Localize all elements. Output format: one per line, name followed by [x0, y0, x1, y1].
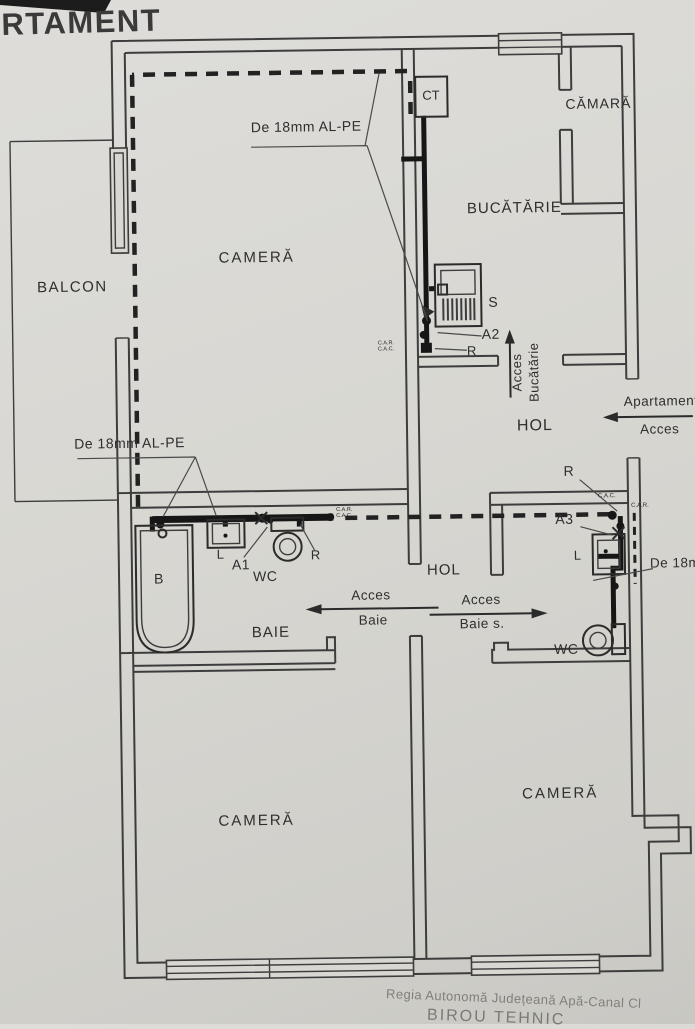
acces-baie-s-line2: Baie s. [460, 617, 505, 632]
page-title: RTAMENT [1, 3, 162, 43]
acces-baie-s-arrow [430, 613, 544, 615]
room-label-camera-bottom-right: CAMERĂ [522, 785, 598, 803]
acces-baie-arrow [310, 608, 439, 610]
label-cac: C.A.C. [336, 513, 352, 519]
acces-baie-line1: Acces [351, 588, 390, 603]
fixture-label-wc-right: WC [554, 642, 579, 658]
room-label-hol-mid: HOL [427, 562, 461, 579]
room-label-camera-top: CAMERĂ [219, 250, 295, 268]
fixture-label-stove: S [488, 295, 498, 311]
pipe-annotation-top: De 18mm AL-PE [251, 119, 362, 136]
label-r-kitchen: R [467, 344, 477, 358]
fixture-label-sink-right: L [574, 549, 581, 563]
fixture-label-wc-left: WC [253, 569, 278, 585]
scanned-floor-plan-page: { "page": { "title_partial": "RTAMENT" }… [0, 0, 695, 1024]
room-label-baie: BAIE [252, 625, 290, 642]
room-label-balcon: BALCON [37, 279, 108, 296]
label-car-cac-mid: C.A.R. C.A.C. [336, 507, 352, 519]
pipe-annotation-mid: De 18mm AL-PE [74, 435, 185, 452]
bottom-left-window [166, 957, 413, 979]
exterior-walls [112, 33, 693, 978]
bottom-right-window [471, 954, 599, 975]
acces-baie-line2: Baie [359, 613, 388, 628]
acces-baie-s-line1: Acces [461, 593, 500, 608]
apartament-acces-label: Acces [640, 422, 679, 437]
toilet-right [583, 624, 625, 656]
apartament-acces-arrow [606, 416, 693, 417]
label-car-cac-kitchen: C.A.R. C.A.C. [378, 340, 394, 352]
label-r-right: R [564, 464, 575, 480]
acces-bucatarie-line2: Bucătărie [524, 312, 543, 432]
stove [435, 264, 482, 327]
label-car-right: C.A.R. [631, 503, 649, 509]
access-arrows [302, 327, 695, 621]
acces-bucatarie-label: Acces Bucătărie [507, 312, 545, 432]
pipe-annotation-right: De 18mm AL-PE [650, 555, 695, 571]
label-a1: A1 [232, 557, 250, 573]
fixture-label-sink-left: L [217, 548, 224, 562]
bathtub [135, 525, 194, 653]
sink-left [207, 519, 244, 548]
label-cac-right: C.A.C. [598, 493, 616, 499]
label-r-bath: R [311, 548, 321, 562]
label-a2: A2 [482, 327, 500, 343]
footer-office-name: BIROU TEHNIC [427, 1007, 566, 1029]
acces-bucatarie-line1: Acces [507, 312, 526, 432]
fixture-label-ct: CT [422, 89, 440, 104]
room-label-camera-bottom-left: CAMERĂ [218, 813, 294, 831]
room-label-bucatarie: BUCĂTĂRIE [467, 200, 562, 218]
label-a3: A3 [555, 512, 573, 528]
apartament-label: Apartament [624, 394, 695, 410]
fixture-label-bathtub: B [154, 571, 164, 587]
room-label-camara: CĂMARĂ [565, 96, 631, 112]
label-cac: C.A.C. [378, 346, 394, 352]
kitchen-window [499, 33, 562, 55]
interior-walls [112, 46, 635, 963]
floor-plan: BALCON CAMERĂ BUCĂTĂRIE CĂMARĂ HOL HOL B… [0, 0, 695, 1029]
balcony-window [110, 148, 128, 253]
